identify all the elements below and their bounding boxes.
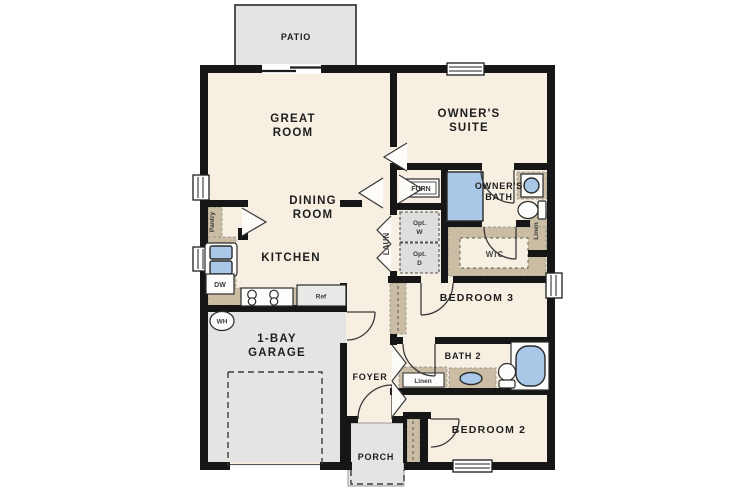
- foyer-label: FOYER: [352, 372, 387, 382]
- garage-label: 1-BAY: [257, 333, 296, 345]
- window: [546, 273, 562, 298]
- sliding-door: [262, 64, 321, 74]
- window: [193, 175, 209, 200]
- dining-room-label: ROOM: [293, 209, 334, 221]
- owners-suite-label: SUITE: [449, 122, 489, 134]
- owners-bath-toilet: [518, 201, 546, 219]
- wic-label: WIC: [486, 250, 505, 259]
- floor-plan-page: PATIO GREAT ROOM OWNER'S SUITE DINING RO…: [0, 0, 750, 500]
- owners-bath-label: BATH: [485, 192, 513, 202]
- bedroom2-label: BEDROOM 2: [452, 424, 526, 436]
- bath2-toilet: [499, 364, 516, 389]
- owners-bath-sink: [521, 174, 543, 197]
- shower: [447, 172, 483, 221]
- garage-label: GARAGE: [248, 347, 306, 359]
- porch-label: PORCH: [358, 452, 395, 462]
- opt-dryer-label: D: [417, 260, 422, 267]
- bath2-label: BATH 2: [445, 351, 482, 361]
- refrigerator-label: Ref: [316, 294, 327, 301]
- patio-label: PATIO: [281, 32, 311, 42]
- owners-suite-label: OWNER'S: [438, 108, 501, 120]
- furnace-label: FURN: [411, 186, 430, 193]
- optional-dryer: [400, 243, 439, 273]
- pantry-label: Pantry: [209, 212, 216, 233]
- bathtub: [511, 342, 549, 390]
- opt-washer-label: Opt.: [413, 220, 426, 227]
- great-room-label: GREAT: [270, 113, 315, 125]
- bedroom3-closet: [390, 283, 406, 334]
- bath2-sink: [460, 373, 482, 385]
- floor-plan: PATIO GREAT ROOM OWNER'S SUITE DINING RO…: [0, 0, 750, 500]
- owners-bath-label: OWNER'S: [475, 181, 523, 191]
- stove: [241, 288, 293, 306]
- water-heater-label: WH: [217, 319, 228, 326]
- kitchen-label: KITCHEN: [261, 252, 321, 264]
- great-room-label: ROOM: [273, 127, 314, 139]
- opt-dryer-label: Opt.: [413, 251, 426, 258]
- bedroom2-closet: [407, 419, 420, 463]
- linen-hall-label: Linen: [533, 222, 540, 239]
- window: [453, 460, 492, 472]
- linen-bath2-label: Linen: [414, 378, 431, 385]
- optional-washer: [400, 212, 439, 242]
- dishwasher-label: DW: [214, 282, 226, 289]
- opt-washer-label: W: [416, 229, 423, 236]
- window: [447, 63, 484, 75]
- kitchen-sink: [205, 243, 237, 276]
- dining-room-label: DINING: [289, 195, 336, 207]
- laundry-label: LAUN: [382, 233, 391, 255]
- bedroom3-label: BEDROOM 3: [440, 292, 514, 304]
